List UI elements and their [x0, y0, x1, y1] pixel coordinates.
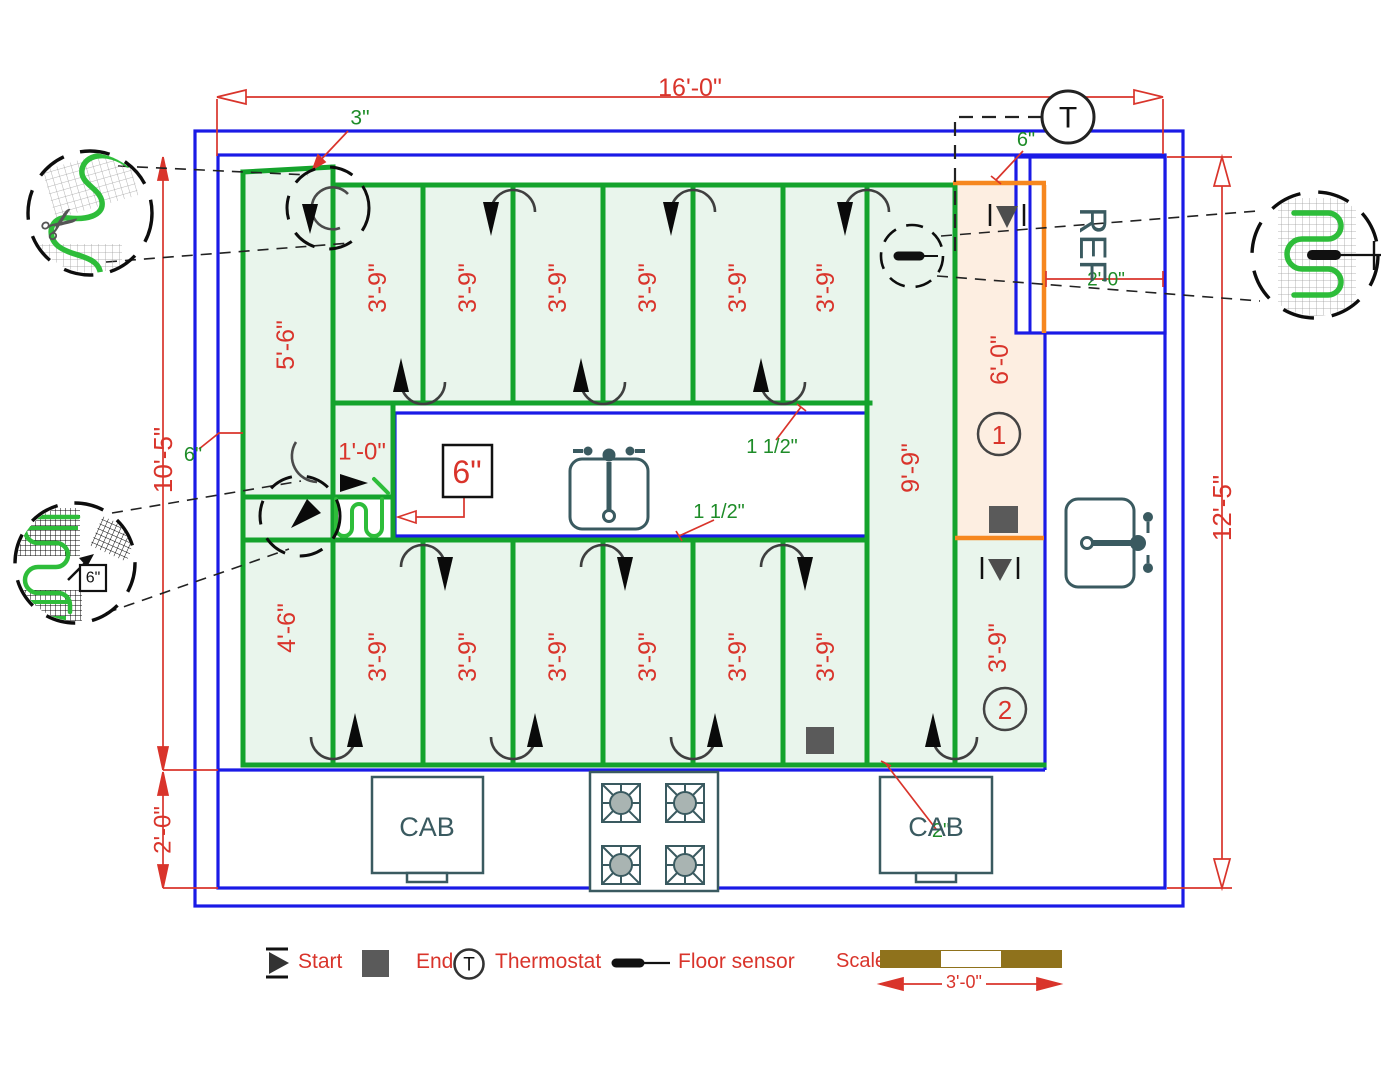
mat-run-label: 3'-9": [812, 632, 840, 682]
mat-run-label: 1'-0": [338, 439, 386, 466]
mat-run-label: 3'-9": [454, 263, 482, 313]
scale-bar: [880, 950, 1062, 968]
end-symbol-2: [806, 727, 834, 754]
mat-run-label: 3'-9": [364, 632, 392, 682]
gap-note: 3": [350, 107, 369, 130]
mat-run-label: 6'-0": [986, 335, 1014, 385]
start-legend-icon: [263, 944, 293, 982]
floor-sensor-legend-icon: [610, 955, 672, 971]
end-legend-icon: [362, 950, 389, 977]
legend-thermostat-label: Thermostat: [495, 950, 601, 974]
detail-mat-turn: [14, 508, 139, 640]
gap-note: 6": [1017, 129, 1035, 151]
mat-run-label: 3'-9": [724, 263, 752, 313]
refrigerator-label: REF: [1071, 207, 1113, 283]
svg-text:T: T: [463, 955, 475, 976]
legend-end-label: End: [416, 950, 453, 974]
scale-label: Scale: [836, 950, 886, 973]
thermostat-symbol-letter: T: [1059, 102, 1077, 135]
legend-start-label: Start: [298, 950, 342, 974]
dim-counter-depth: 2'-0": [150, 806, 177, 854]
gap-note: 6": [184, 444, 202, 466]
mat-number-1: 1: [992, 420, 1006, 450]
mat-run-label: 5'-6": [272, 320, 300, 370]
edge-gap-note: 1 1/2": [693, 501, 745, 523]
mat-run-label: 3'-9": [544, 263, 572, 313]
mat-run-label: 4'-6": [273, 603, 301, 653]
mat-run-label: 3'-9": [364, 263, 392, 313]
mat-run-label: 3'-9": [634, 263, 662, 313]
mat-number-2: 2: [998, 695, 1012, 725]
dim-left-height: 10'-5": [148, 427, 178, 493]
end-symbol-1: [989, 506, 1018, 533]
mat-run-label: 9'-9": [897, 443, 925, 493]
mat-run-label: 3'-9": [544, 632, 572, 682]
cabinet-label: CAB: [399, 812, 455, 842]
thermostat-legend-icon: T: [451, 946, 487, 982]
dim-total-width: 16'-0": [658, 74, 722, 102]
mat-run-label: 3'-9": [984, 623, 1012, 673]
floorplan-canvas: ✂: [0, 0, 1400, 1067]
mat-run-label: 3'-9": [724, 632, 752, 682]
mat-spacing-callout: 6": [452, 454, 481, 490]
wall-sink-icon: [1066, 499, 1153, 587]
legend-floor-sensor-label: Floor sensor: [678, 950, 795, 974]
mat-run-label: 3'-9": [812, 263, 840, 313]
mat-run-label: 3'-9": [454, 632, 482, 682]
detail-spacing-label: 6": [86, 570, 101, 587]
edge-gap-note: 1 1/2": [746, 436, 798, 458]
dim-total-height: 12'-5": [1207, 475, 1237, 541]
island-sink-icon: [570, 447, 648, 530]
mat-run-label: 3'-9": [634, 632, 662, 682]
stove-icon: [590, 772, 718, 891]
cabinet-label: CAB: [908, 812, 964, 842]
scale-value: 3'-0": [942, 972, 986, 993]
floorplan-page: ✂: [0, 0, 1400, 1067]
